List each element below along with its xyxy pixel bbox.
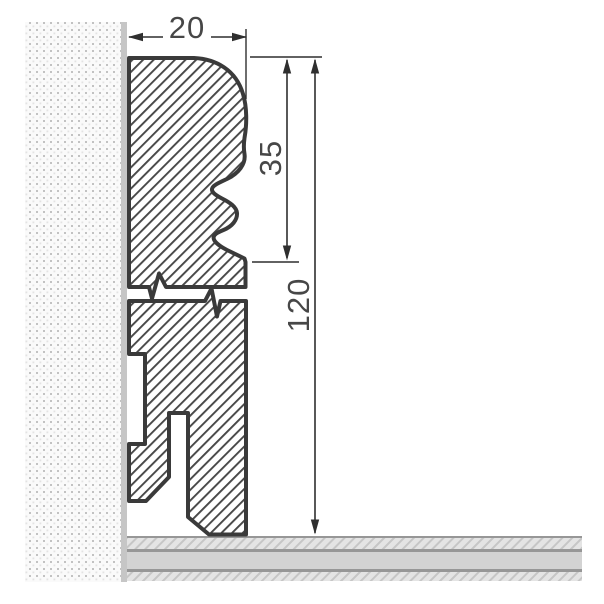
floor-separator-line [127, 569, 582, 572]
wall-strip [121, 22, 127, 582]
skirting-board-cross-section-drawing: 20 35 120 [0, 0, 604, 604]
floor-layer-top-hatch [127, 538, 582, 549]
floor-layer-bottom-hatch [127, 572, 582, 581]
wall-section [25, 22, 121, 582]
skirting-lower-profile [129, 289, 246, 535]
floor-section [127, 536, 582, 581]
dimension-total-height-label: 120 [281, 278, 316, 333]
skirting-upper-profile [129, 58, 246, 299]
dimension-width-label: 20 [169, 10, 205, 45]
floor-separator-line [127, 549, 582, 552]
floor-layer-middle [127, 552, 582, 569]
dimension-upper-height-label: 35 [253, 140, 288, 176]
floor-top-edge [127, 536, 582, 538]
